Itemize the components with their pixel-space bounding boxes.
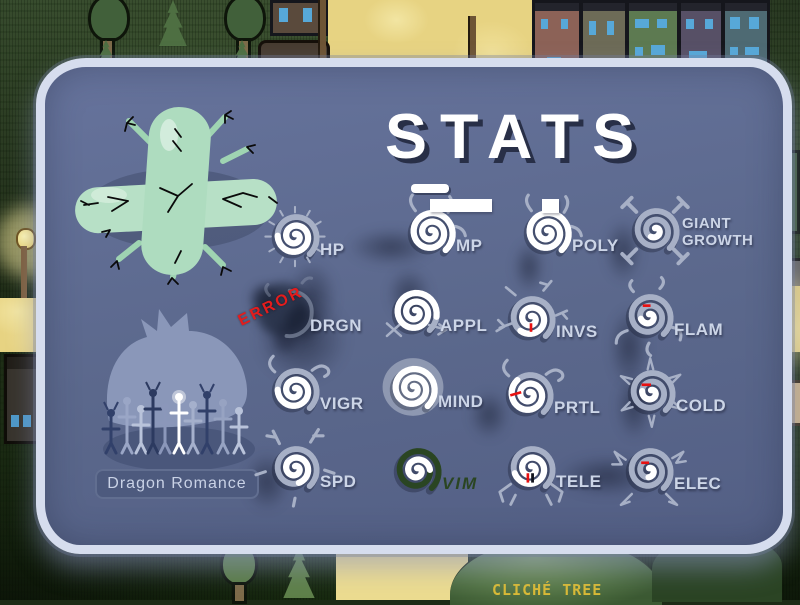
stat-label-vim: VIM — [442, 474, 478, 494]
elec-spiral-icon — [610, 430, 688, 508]
stat-label-giant-growth: GIANT GROWTH — [682, 216, 774, 250]
tele-spiral-icon — [492, 428, 570, 506]
stat-hp[interactable]: HP — [256, 196, 334, 274]
stat-prtl[interactable]: PRTL — [490, 354, 568, 432]
appl-spiral-icon — [376, 272, 454, 350]
hp-spiral-icon — [256, 196, 334, 274]
mind-spiral-icon — [374, 348, 452, 426]
stat-label-invs: INVS — [556, 322, 598, 342]
spd-spiral-icon — [256, 428, 334, 506]
stat-mind[interactable]: MIND — [374, 348, 452, 426]
flam-spiral-icon — [610, 276, 688, 354]
stat-vim[interactable]: VIM — [378, 430, 456, 508]
stat-flam[interactable]: FLAM — [610, 276, 688, 354]
stat-label-vigr: VIGR — [320, 394, 364, 414]
stat-label-appl: APPL — [440, 316, 487, 336]
stat-drgn[interactable]: ERROR DRGN — [246, 272, 324, 350]
vim-spiral-icon — [378, 430, 456, 508]
mp-progress-bar — [430, 199, 492, 212]
stat-mp[interactable]: MP — [392, 192, 470, 270]
cliche-tree-label: CLICHÉ TREE — [492, 581, 602, 599]
stat-label-hp: HP — [320, 240, 345, 260]
stat-label-cold: COLD — [676, 396, 726, 416]
stat-label-flam: FLAM — [674, 320, 723, 340]
stat-spd[interactable]: SPD — [256, 428, 334, 506]
stat-label-poly: POLY — [572, 236, 619, 256]
poly-progress-square — [542, 199, 559, 213]
poster-caption: Dragon Romance — [107, 475, 246, 493]
stat-poly[interactable]: POLY — [508, 192, 586, 270]
dragon-romance-poster[interactable] — [95, 301, 263, 473]
stat-label-spd: SPD — [320, 472, 356, 492]
stat-label-tele: TELE — [556, 472, 601, 492]
stat-label-mind: MIND — [438, 392, 483, 412]
stat-label-prtl: PRTL — [554, 398, 600, 418]
stat-tele[interactable]: TELE — [492, 428, 570, 506]
stat-giant-growth[interactable]: GIANT GROWTH — [616, 190, 694, 268]
stat-invs[interactable]: INVS — [492, 278, 570, 356]
stat-label-elec: ELEC — [674, 474, 721, 494]
stat-elec[interactable]: ELEC — [610, 430, 688, 508]
stat-cold[interactable]: COLD — [612, 352, 690, 430]
invs-spiral-icon — [492, 278, 570, 356]
prtl-spiral-icon — [490, 354, 568, 432]
poster-caption-pill[interactable]: Dragon Romance — [95, 469, 259, 499]
stat-label-mp: MP — [456, 236, 483, 256]
vigr-spiral-icon — [256, 350, 334, 428]
stat-label-drgn: DRGN — [310, 316, 362, 336]
creature-portrait[interactable] — [73, 101, 283, 286]
page-title: STATS — [385, 101, 647, 173]
stats-panel: STATS Dragon Romance — [36, 58, 792, 554]
stat-vigr[interactable]: VIGR — [256, 350, 334, 428]
dark-building — [4, 354, 40, 444]
stat-appl[interactable]: APPL — [376, 272, 454, 350]
cold-spiral-icon — [612, 352, 690, 430]
